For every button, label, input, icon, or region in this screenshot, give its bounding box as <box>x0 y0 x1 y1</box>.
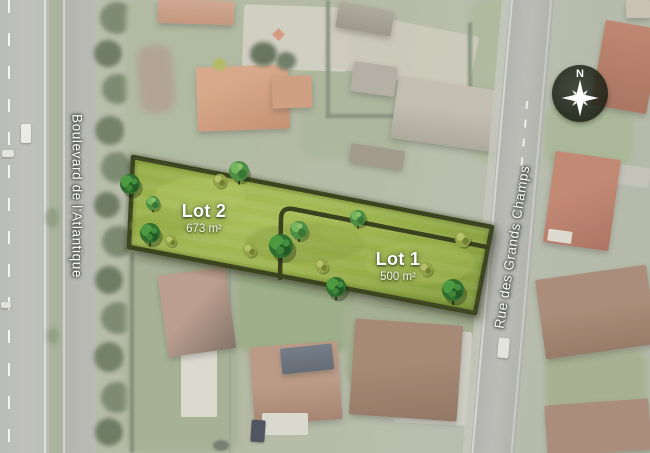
lot1-label: Lot 1 500 m² <box>376 249 421 283</box>
lot2-name: Lot 2 <box>182 201 227 222</box>
lot1-name: Lot 1 <box>376 249 421 270</box>
compass-star-icon <box>558 76 602 120</box>
compass-rose-icon: N <box>552 65 608 122</box>
street-label-boulevard: Boulevard de l'Atlantique <box>70 114 85 278</box>
satellite-map: Lot 2 673 m² Lot 1 500 m² Boulevard de l… <box>0 0 650 453</box>
lot2-label: Lot 2 673 m² <box>182 201 227 235</box>
lot1-area: 500 m² <box>376 271 421 283</box>
lot2-area: 673 m² <box>182 223 227 235</box>
